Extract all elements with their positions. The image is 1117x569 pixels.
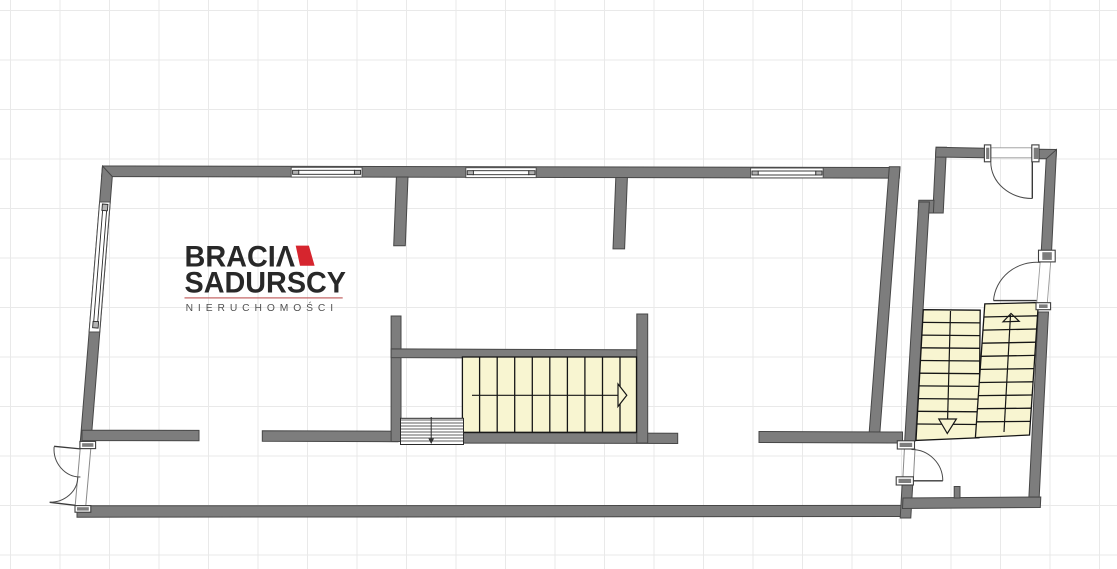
svg-text:NIERUCHOMOŚCI: NIERUCHOMOŚCI	[186, 301, 334, 314]
svg-text:SADURSCY: SADURSCY	[185, 266, 347, 299]
